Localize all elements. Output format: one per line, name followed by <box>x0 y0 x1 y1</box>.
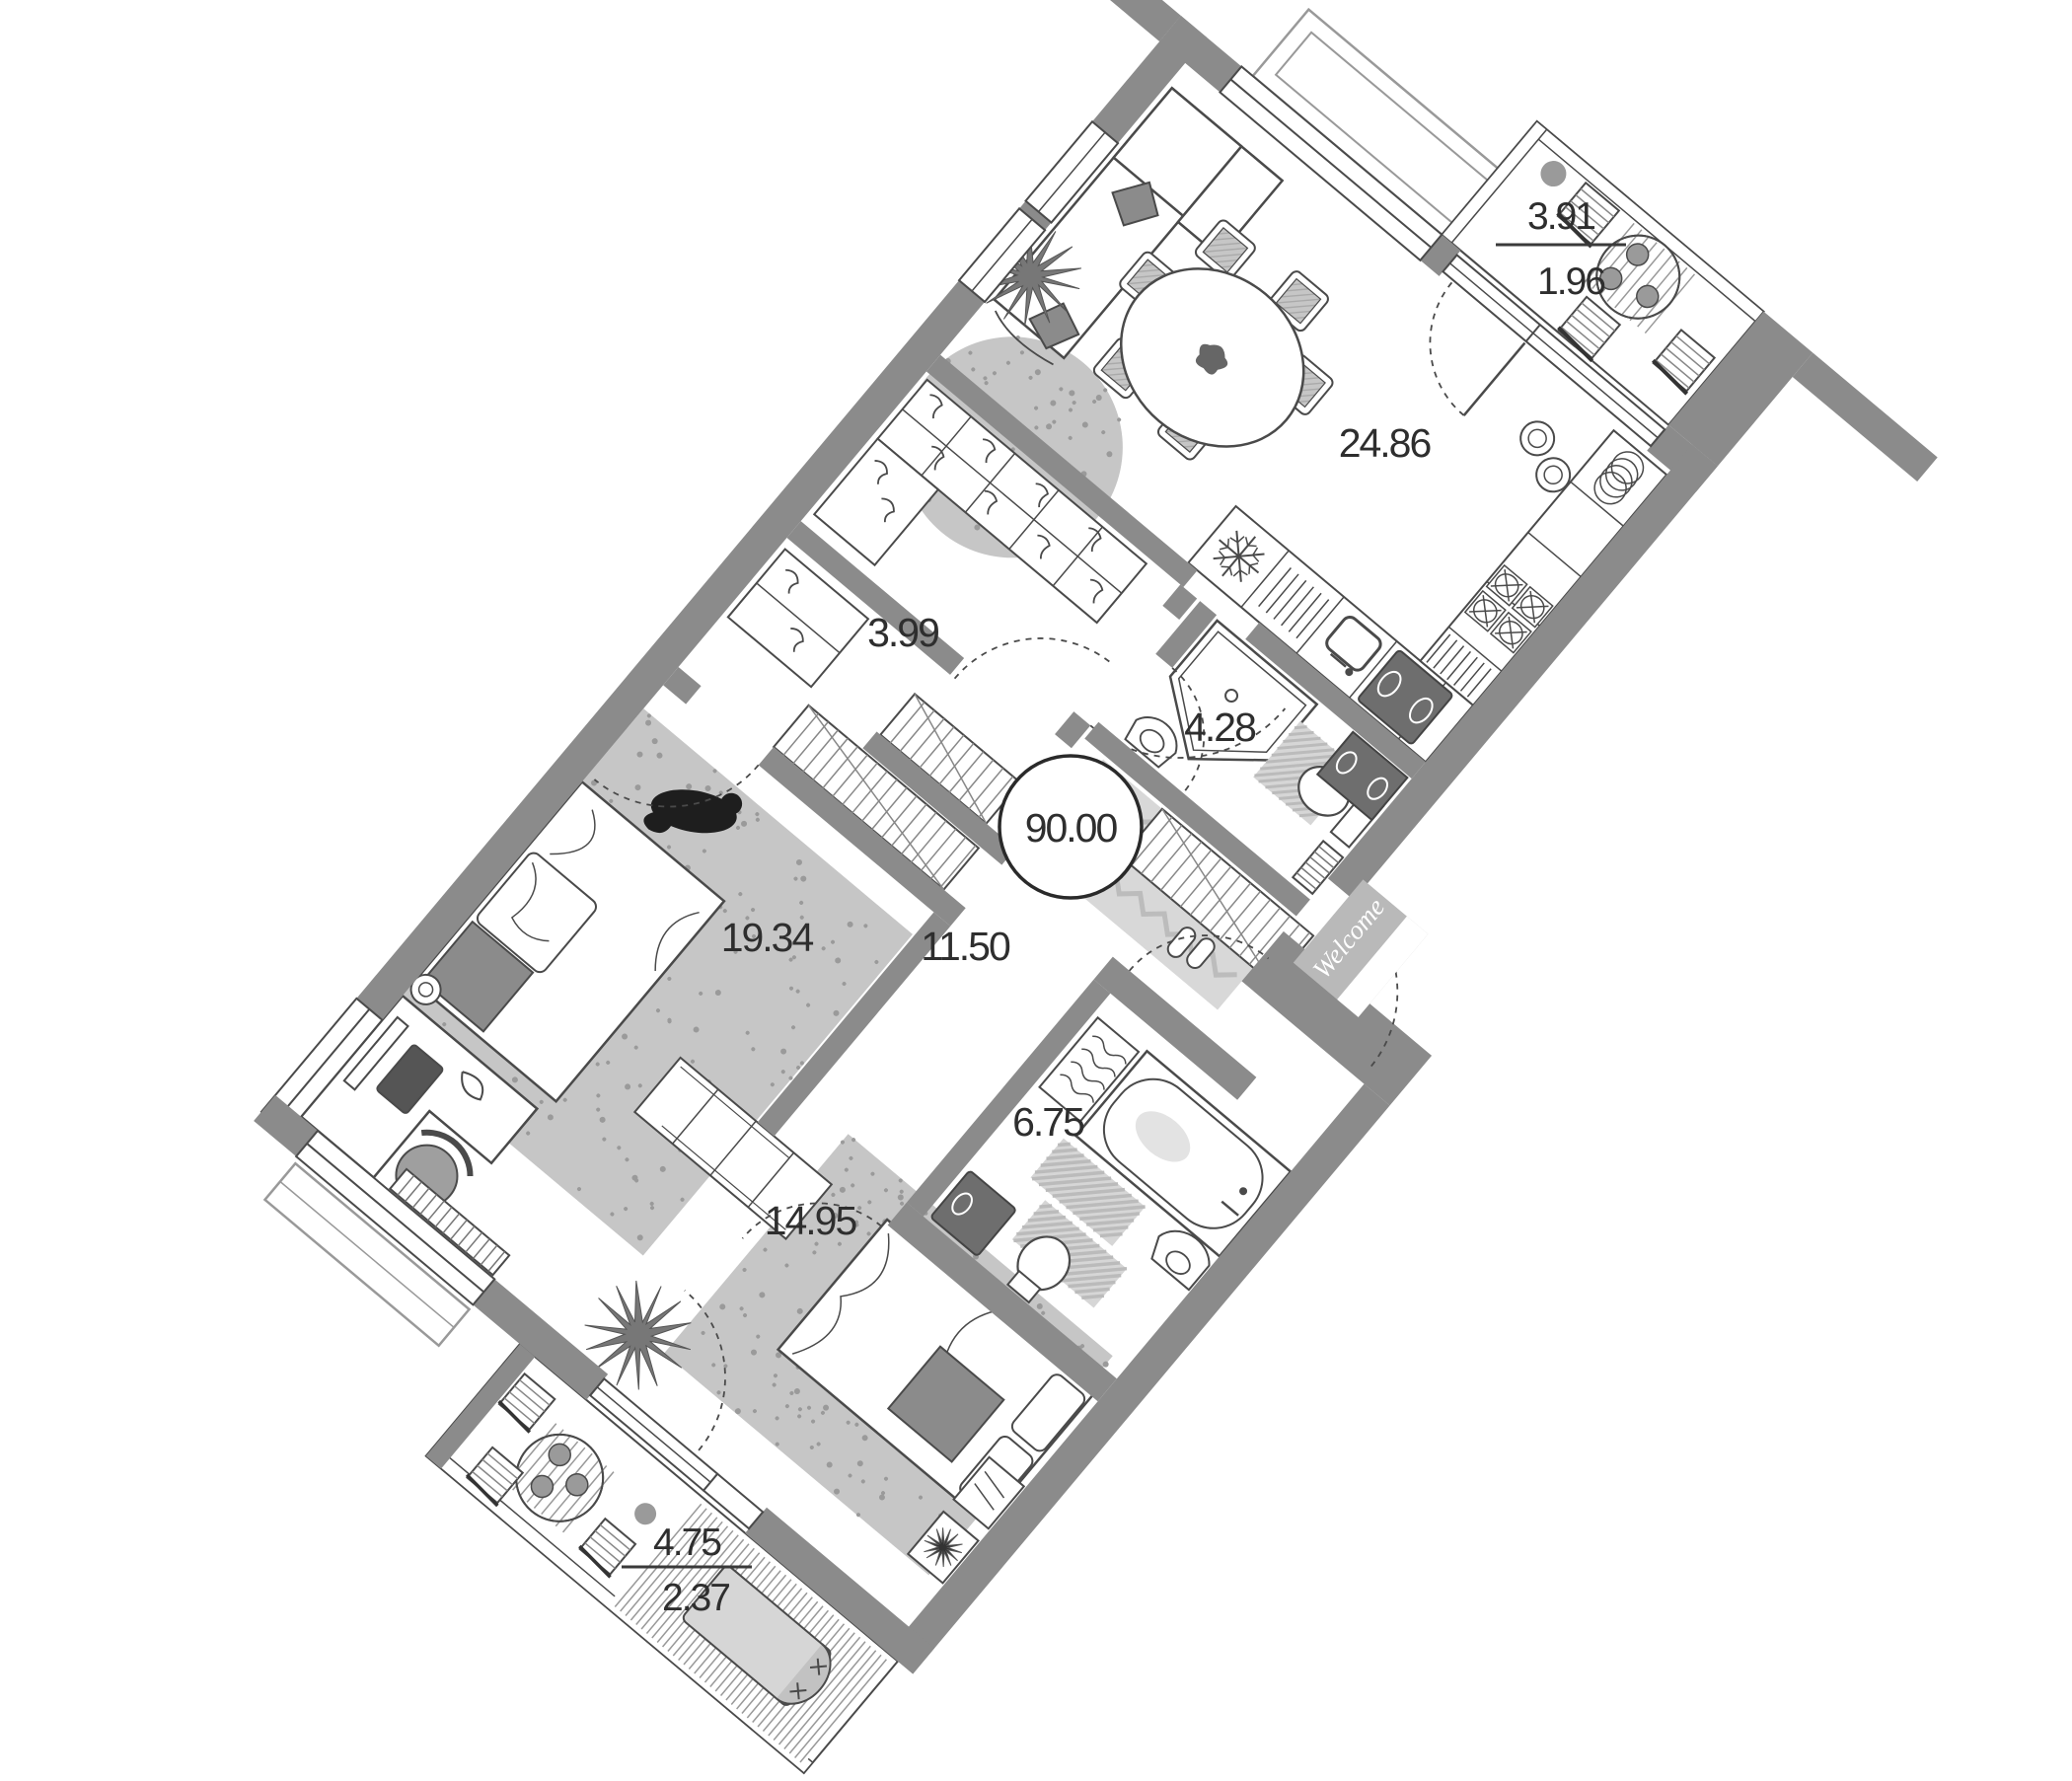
svg-text:6.75: 6.75 <box>1012 1099 1084 1145</box>
svg-text:24.86: 24.86 <box>1339 420 1431 466</box>
svg-text:3.99: 3.99 <box>867 610 938 655</box>
svg-text:19.34: 19.34 <box>721 915 814 960</box>
svg-text:4.28: 4.28 <box>1184 705 1256 750</box>
svg-text:3.91: 3.91 <box>1527 195 1594 238</box>
svg-text:2.37: 2.37 <box>662 1577 729 1619</box>
svg-text:90.00: 90.00 <box>1025 805 1118 851</box>
svg-text:1.96: 1.96 <box>1537 260 1604 303</box>
svg-text:4.75: 4.75 <box>653 1521 721 1564</box>
svg-text:14.95: 14.95 <box>765 1198 857 1243</box>
svg-text:11.50: 11.50 <box>921 924 1010 969</box>
